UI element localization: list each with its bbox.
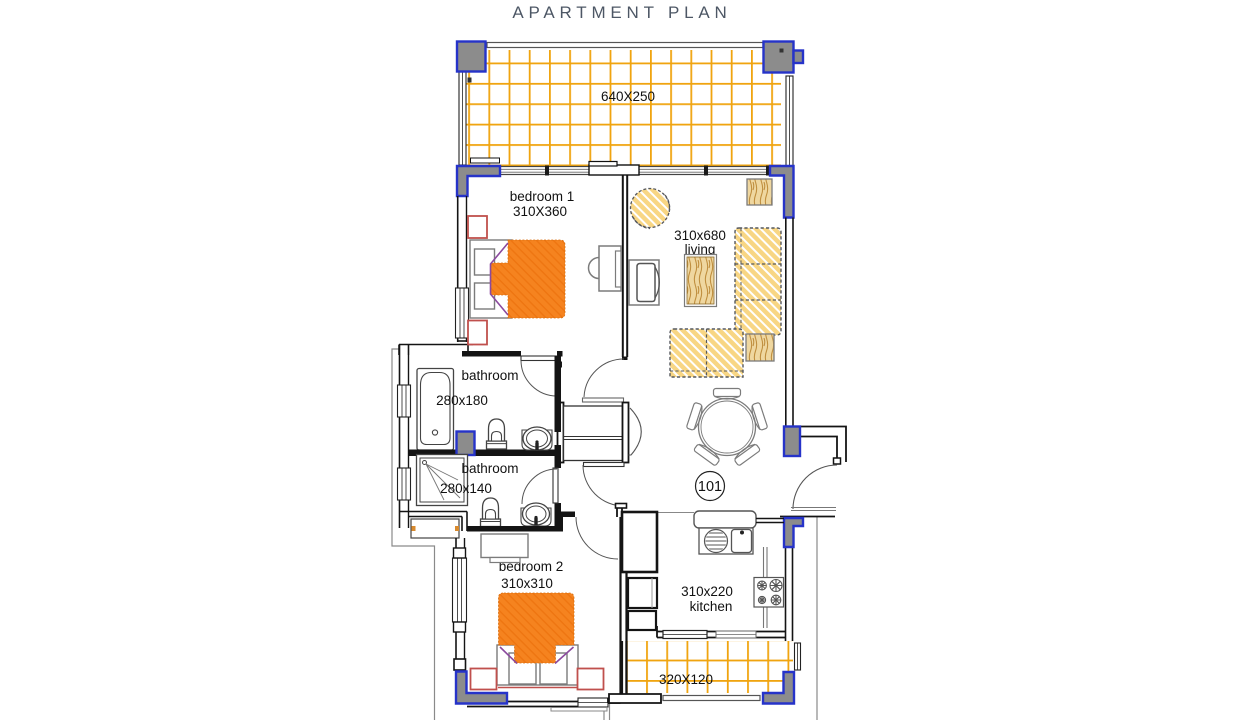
svg-text:310x680: 310x680 xyxy=(674,228,726,243)
svg-text:bedroom 1: bedroom 1 xyxy=(510,189,575,204)
svg-text:310x220: 310x220 xyxy=(681,584,733,599)
svg-text:bathroom: bathroom xyxy=(461,461,518,476)
svg-text:bathroom: bathroom xyxy=(461,368,518,383)
svg-text:kitchen: kitchen xyxy=(690,599,733,614)
svg-text:APARTMENT PLAN: APARTMENT PLAN xyxy=(512,3,731,22)
svg-text:280x140: 280x140 xyxy=(440,481,492,496)
svg-text:101: 101 xyxy=(698,479,722,495)
svg-text:310X360: 310X360 xyxy=(513,204,567,219)
svg-text:310x310: 310x310 xyxy=(501,576,553,591)
svg-text:280x180: 280x180 xyxy=(436,393,488,408)
svg-text:320X120: 320X120 xyxy=(659,672,713,687)
svg-text:640X250: 640X250 xyxy=(601,89,655,104)
